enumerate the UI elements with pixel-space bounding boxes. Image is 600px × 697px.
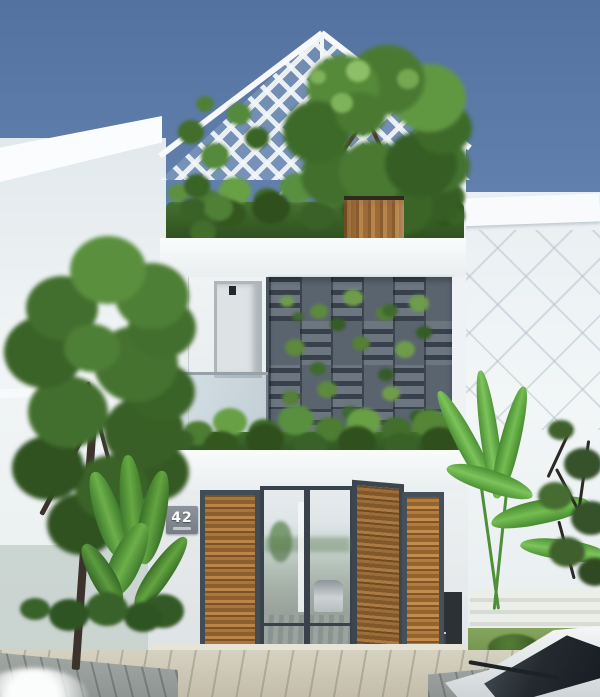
house-number: 42 [171, 511, 192, 525]
rooftop-hedge-tufts-dark [180, 198, 206, 218]
screen-plants-light [280, 296, 294, 307]
left-low-bushes [20, 598, 50, 620]
climbing-vine-right [432, 148, 446, 160]
house-number-sublabel-bar [173, 527, 191, 530]
entry-right-gate-leaf [402, 492, 444, 664]
entry-glass-door [260, 486, 354, 650]
screen-plants-dark [292, 312, 304, 321]
glass-view-plant [269, 521, 291, 562]
right-tree-foliage [548, 420, 574, 440]
center-tree-canopy [336, 92, 386, 136]
wall-lamp [229, 286, 236, 295]
scene-townhouse-render: 42 [0, 0, 600, 697]
glass-door-rail [264, 623, 350, 626]
balcony-hedge-tufts-dark [168, 430, 194, 450]
entry-right-gate-leaf-open [352, 480, 404, 665]
left-tree-canopy [64, 324, 120, 372]
second-floor-door [214, 281, 262, 378]
vertical-garden-slat-screen [266, 277, 452, 458]
house-number-plate: 42 [166, 506, 198, 534]
glass-view-parked-car [314, 580, 343, 611]
center-tree-canopy-highlights [310, 70, 326, 84]
balcony-glass-balustrade [166, 372, 268, 436]
climbing-vine-left [196, 96, 214, 112]
rooftop-parapet [160, 238, 466, 280]
entry-left-wood-gate [200, 490, 260, 655]
